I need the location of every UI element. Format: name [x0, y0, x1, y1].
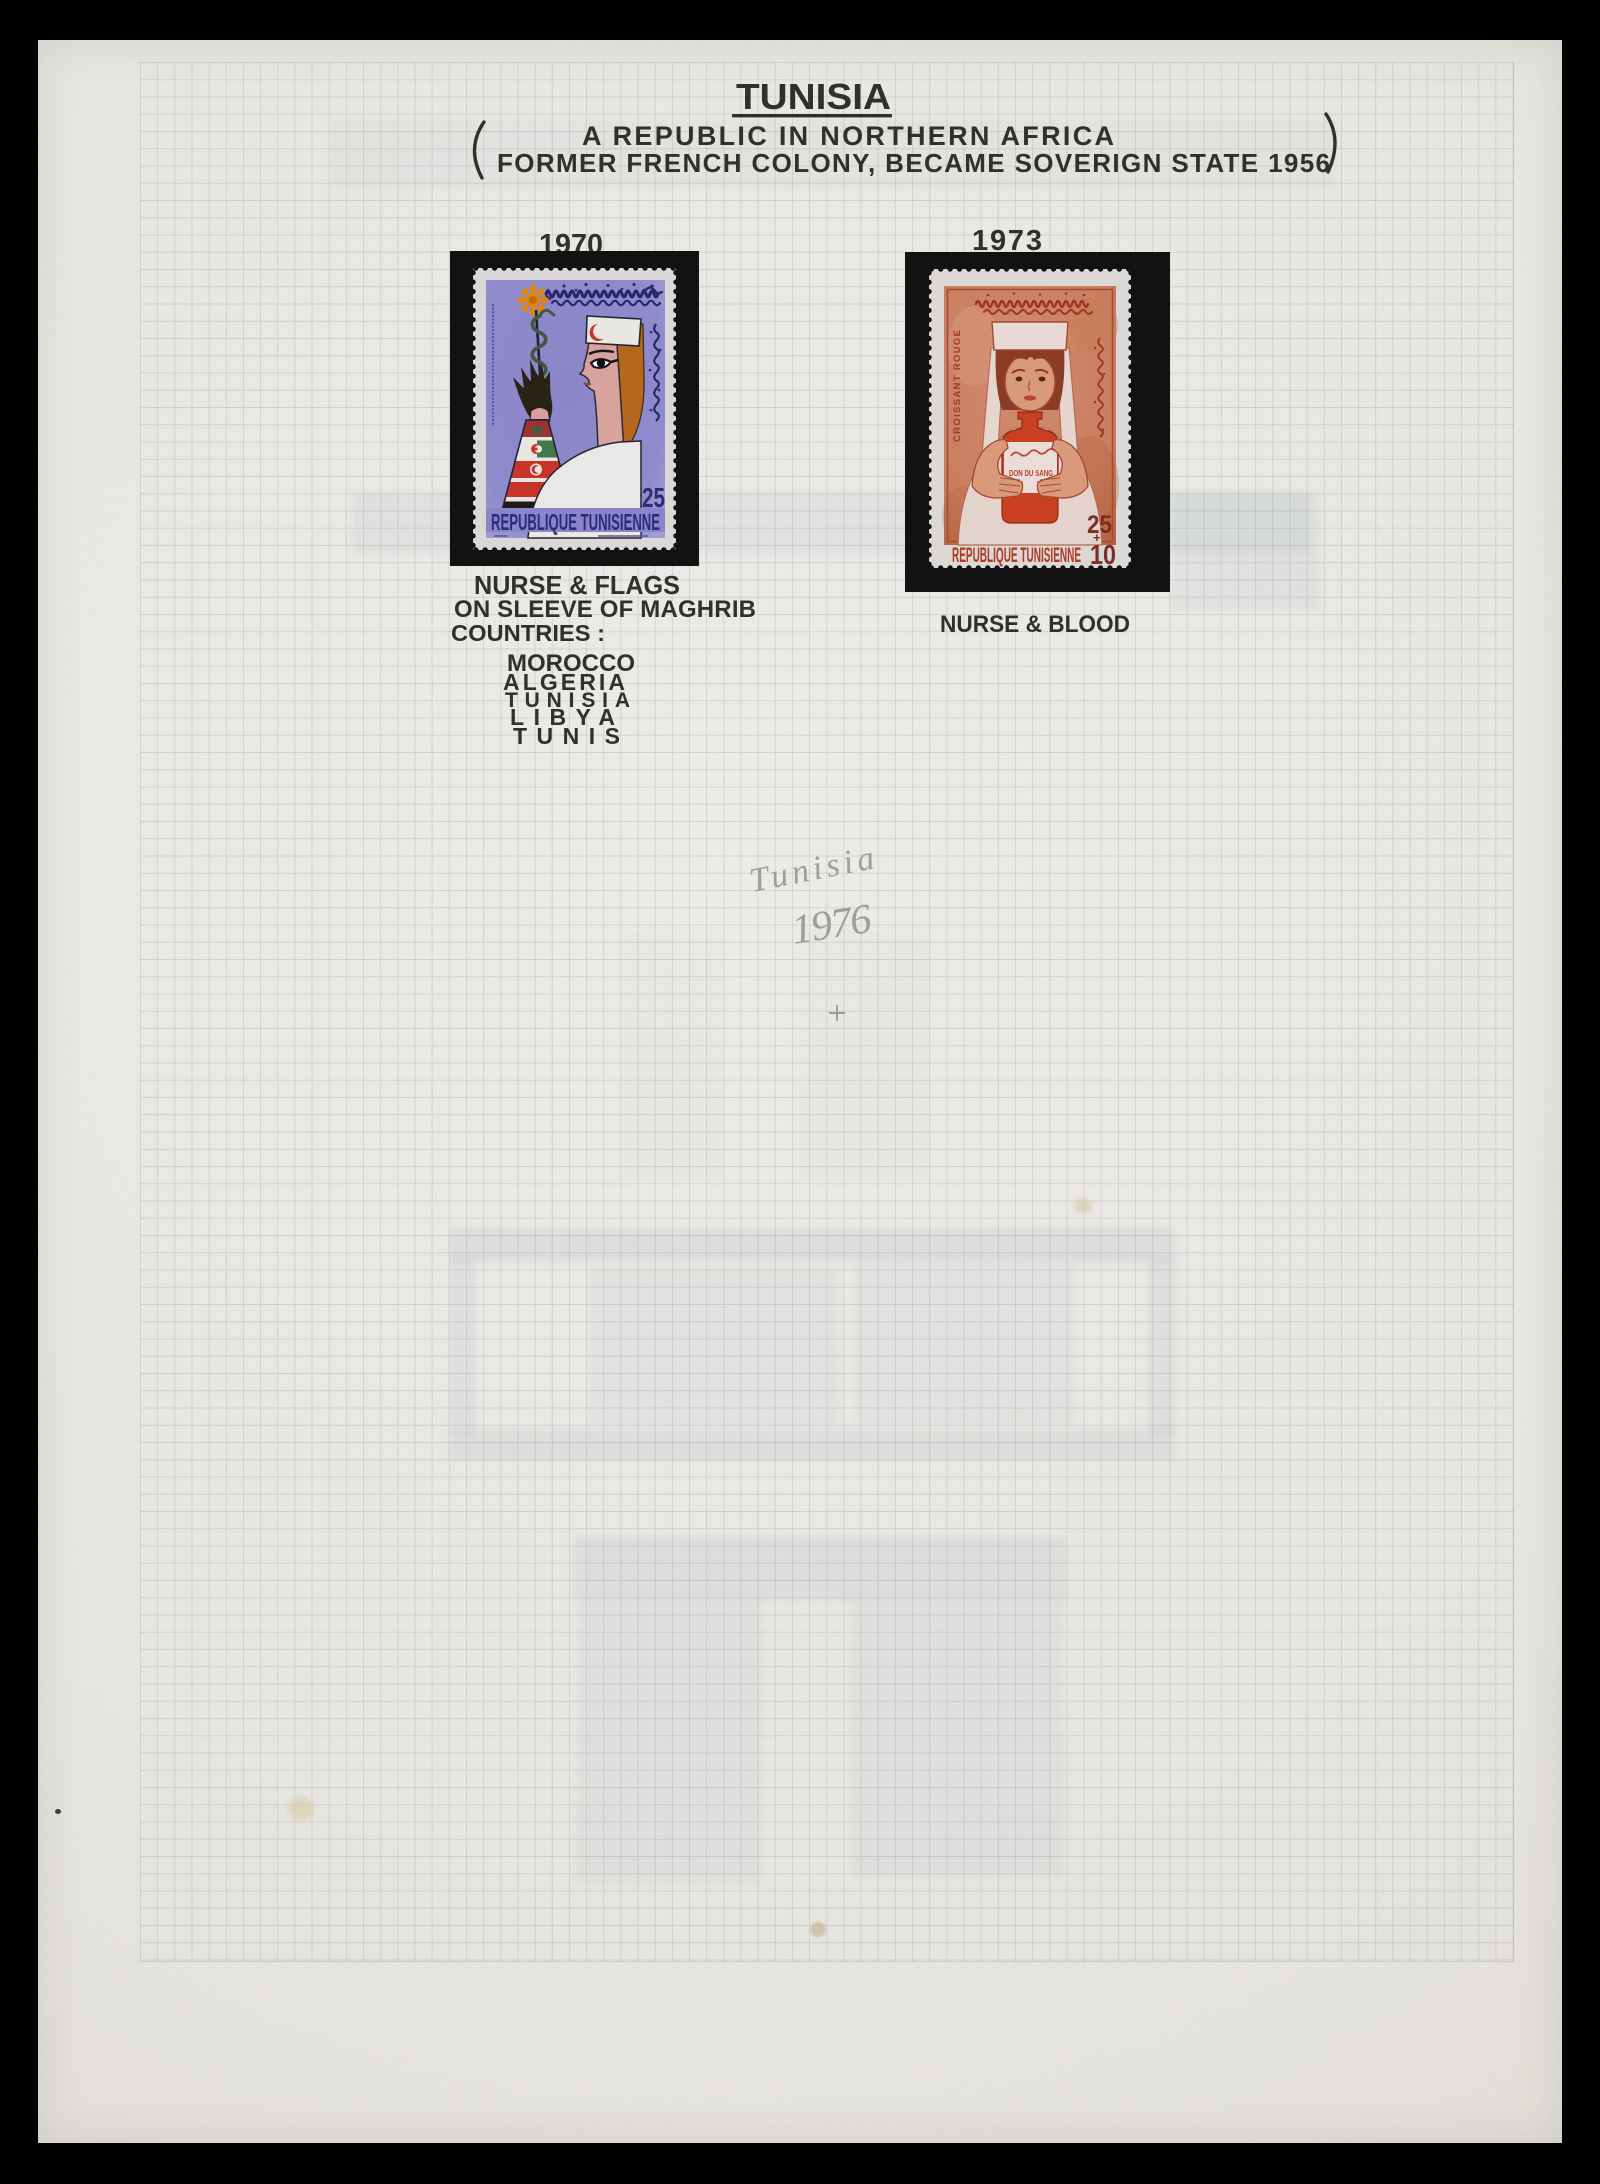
svg-text:REPUBLIQUE TUNISIENNE: REPUBLIQUE TUNISIENNE [491, 509, 660, 535]
svg-text:REPUBLIQUE TUNISIENNE: REPUBLIQUE TUNISIENNE [952, 544, 1081, 567]
svg-text:10: 10 [1090, 539, 1116, 570]
svg-text:DON DU SANG: DON DU SANG [1009, 468, 1053, 478]
svg-text:CROISSANT ROUGE: CROISSANT ROUGE [952, 330, 963, 442]
